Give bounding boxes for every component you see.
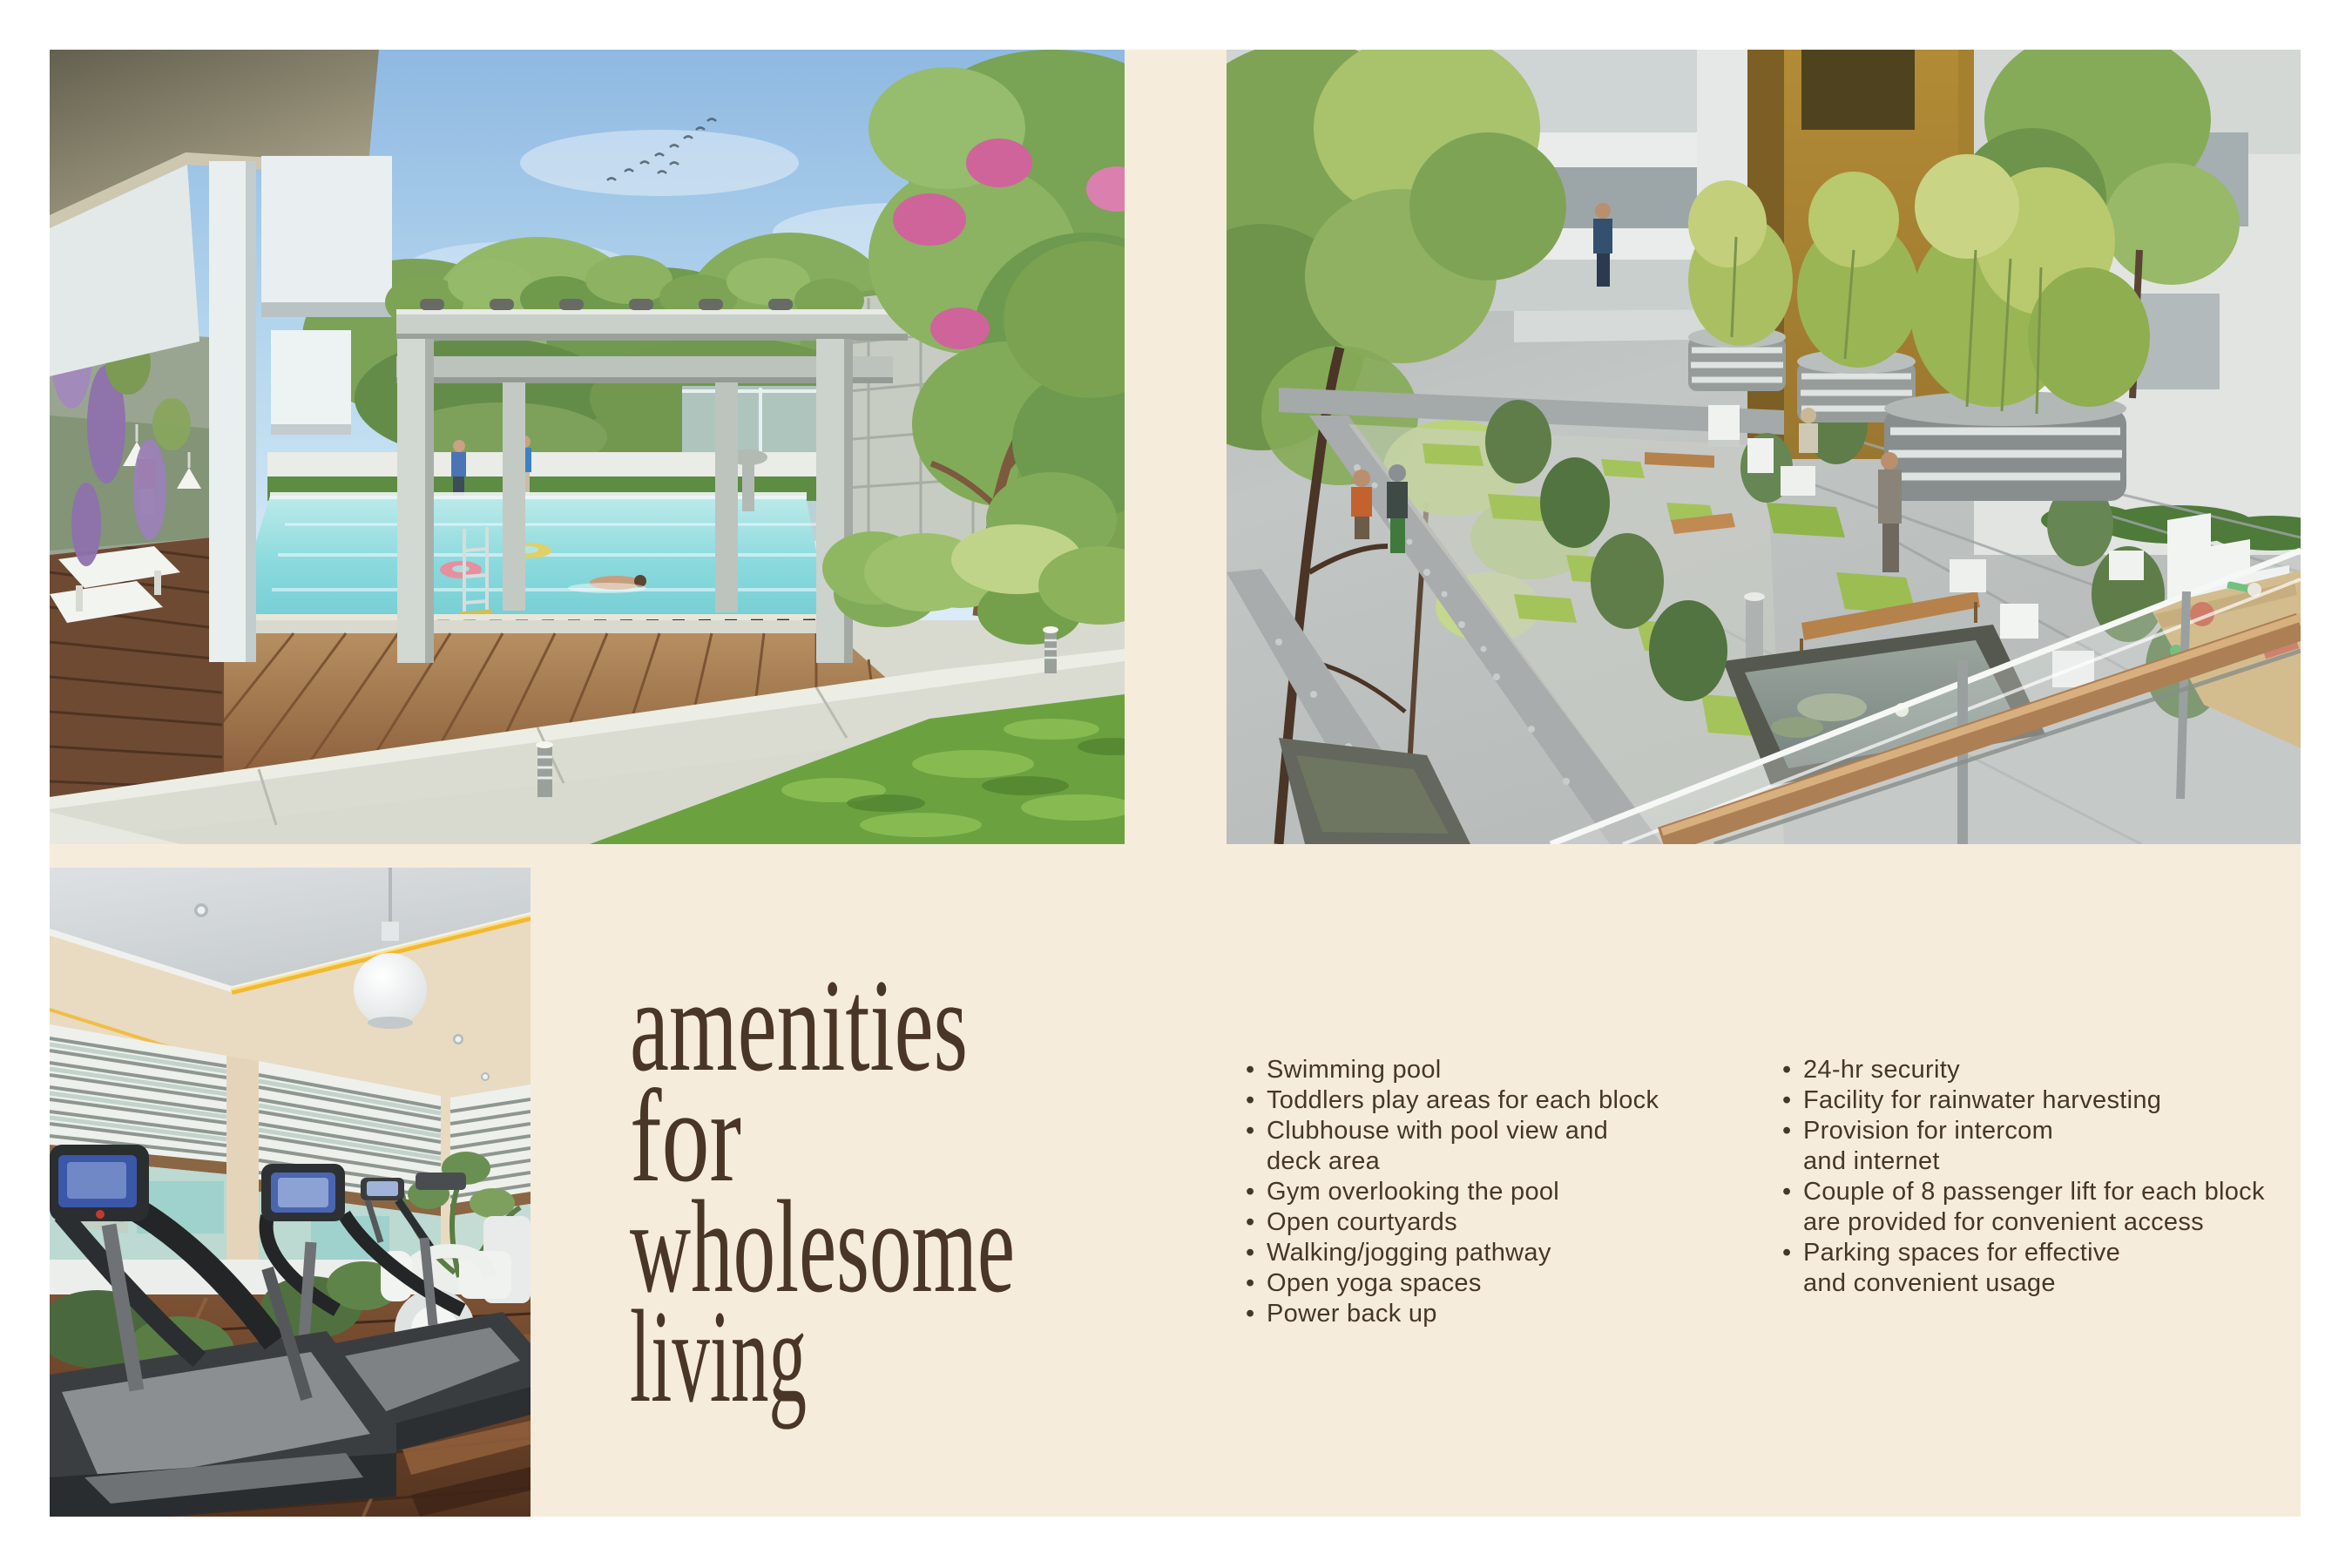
svg-text:living: living xyxy=(630,1283,807,1429)
